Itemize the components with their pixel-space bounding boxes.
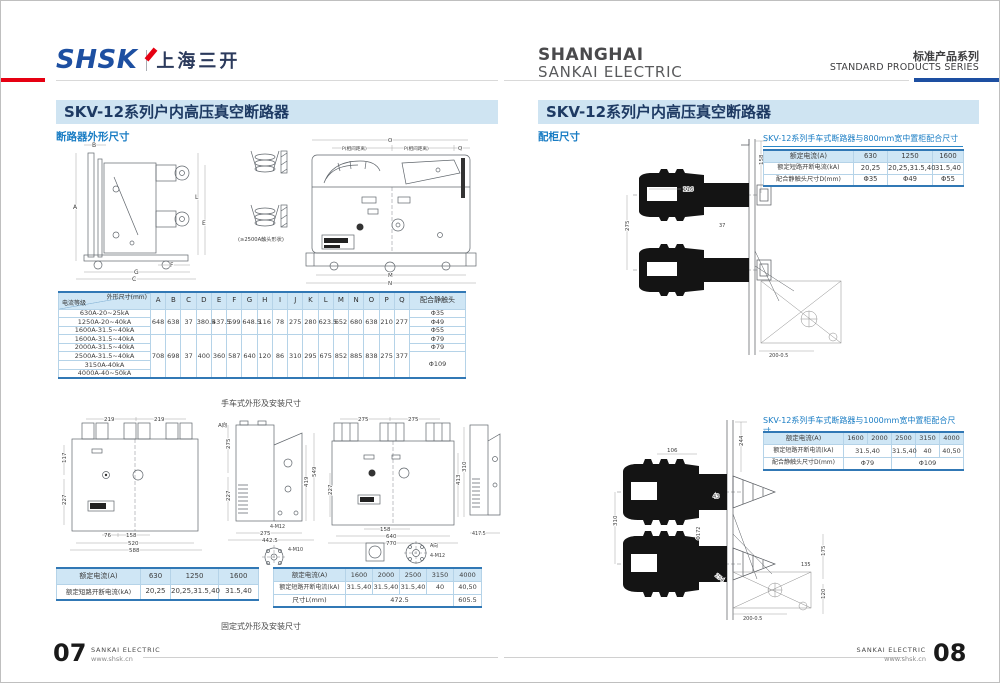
val: 31.5,40 [373, 581, 400, 594]
val: 275 [288, 309, 303, 335]
col-header: M [333, 292, 348, 309]
val: 116 [257, 309, 272, 335]
dim-label: M [388, 273, 393, 279]
val: 605.5 [454, 594, 482, 607]
contact-shape-note: (≥2500A触头形状) [238, 235, 284, 243]
col-header: O [364, 292, 379, 309]
left-page-number: 07 [53, 639, 86, 667]
fixed-detail-views: A向 4-M12 [366, 541, 445, 565]
corner-bottom-label: 电流等级 [62, 301, 86, 307]
val: 708 [151, 335, 166, 378]
val: 37 [181, 335, 196, 378]
val: 1600 [346, 568, 373, 581]
val: 360 [211, 335, 226, 378]
val: 2500 [400, 568, 427, 581]
val: 623.5 [318, 309, 333, 335]
dim-label: 219 [154, 417, 165, 423]
row-label: 4000A-40~50kA [59, 369, 151, 378]
fixed-front-view-2: 275 275 227 413 158 640 770 [328, 417, 462, 547]
row-label: 配合静触头尺寸D(mm) [764, 174, 854, 186]
dim-label: 227 [62, 494, 68, 505]
val: 20,25,31.5,40 [888, 162, 933, 174]
dim-label: 117 [62, 452, 68, 463]
fixed-rating-table: 额定电流(A) 1600 2000 2500 3150 4000 额定短路开断电… [273, 567, 482, 608]
val: 120 [257, 335, 272, 378]
fixed-front-view-1: 219 219 117 227 76 158 520 588 [62, 417, 202, 554]
dim-label: N [388, 281, 392, 287]
val: 472.5 [346, 594, 454, 607]
dim-label: 106 [667, 448, 678, 454]
col-header: A [151, 292, 166, 309]
truck-mechanism-2 [733, 572, 811, 610]
dim-label: 275 [625, 220, 631, 231]
row-label: 额定短路开断电流(kA) [764, 445, 844, 458]
cabinet-1000mm-table: 额定电流(A) 1600 2000 2500 3150 4000 额定短路开断电… [763, 431, 964, 471]
dim-label: 442.5 [262, 538, 278, 544]
fixed-breaker-drawing: 219 219 117 227 76 158 520 588 [56, 413, 501, 565]
val: Φ49 [888, 174, 933, 186]
header-navy-rule [914, 78, 1000, 82]
val: Φ79 [844, 457, 892, 470]
val: 380.5 [196, 309, 211, 335]
val: 310 [288, 335, 303, 378]
logo-brand-cn: 上海三开 [156, 51, 240, 72]
col-header: K [303, 292, 318, 309]
val: 280 [303, 309, 318, 335]
dim-label: E [202, 220, 206, 227]
contact-val: Φ49 [410, 318, 466, 327]
dim-label: 227 [328, 484, 334, 495]
val: 675 [318, 335, 333, 378]
dim-label: A [73, 204, 78, 211]
fixed-side-view-2: 310 417.5 [462, 425, 500, 537]
dim-label: 310 [613, 515, 619, 526]
val: 86 [272, 335, 287, 378]
val: 599 [227, 309, 242, 335]
footer-brand-right: SANKAI ELECTRIC [831, 646, 926, 654]
fixed-caption: 固定式外形及安装尺寸 [56, 621, 466, 632]
dim-label: A向 [218, 421, 227, 429]
row-label: 2500A-31.5~40kA [59, 352, 151, 361]
handcart-side-view [84, 153, 189, 269]
row-label: 额定短路开断电流(kA) [764, 162, 854, 174]
dim-label: 175 [821, 545, 827, 556]
col-header: E [211, 292, 226, 309]
row-label: 2000A-31.5~40kA [59, 343, 151, 352]
val: 640 [242, 335, 257, 378]
dim-label: 588 [129, 548, 140, 554]
val: 1600 [219, 568, 259, 584]
contact-val: Φ79 [410, 343, 466, 352]
right-section-label: 配柜尺寸 [538, 129, 580, 144]
col-header: F [227, 292, 242, 309]
row-label: 配合静触头尺寸D(mm) [764, 457, 844, 470]
dim-label: 116 [683, 187, 694, 193]
footer-url-right: www.shsk.cn [831, 655, 926, 663]
val: 2000 [373, 568, 400, 581]
dim-label: 158 [380, 527, 391, 533]
handcart-rating-table: 额定电流(A) 630 1250 1600 额定短路开断电流(kA) 20,25… [56, 567, 259, 601]
diagonal-header-cell: 外形尺寸(mm) 电流等级 [59, 292, 151, 309]
dim-label: Q [458, 146, 463, 152]
dim-label: P(相间距离) [404, 145, 429, 152]
outline-dimensions-table: 外形尺寸(mm) 电流等级 A B C D E F G H I J K L M … [58, 291, 466, 379]
dim-label: F [170, 262, 174, 269]
dim-label: 37 [719, 223, 725, 229]
col-header: G [242, 292, 257, 309]
val: 838 [364, 335, 379, 378]
right-page-title: SKV-12系列户内高压真空断路器 [538, 100, 979, 124]
left-page-title: SKV-12系列户内高压真空断路器 [56, 100, 498, 124]
fixed-side-view-1: A向 275 227 419 549 4-M12 275 442.5 4-M10 [218, 421, 318, 565]
row-label: 额定电流(A) [274, 568, 346, 581]
dim-label: 275 [358, 417, 369, 423]
handcart-dim-lines [76, 145, 205, 279]
dim-label: 275 [226, 438, 232, 449]
row-label: 1250A-20~40kA [59, 318, 151, 327]
val: 31.5,40 [844, 445, 892, 458]
val: 377 [394, 335, 409, 378]
header-rule-right [504, 80, 909, 81]
dim-label: 520 [128, 541, 139, 547]
row-label: 额定短路开断电流(kA) [57, 584, 141, 600]
company-name-line1: SHANGHAI [538, 45, 644, 65]
dim-label: 4-M12 [270, 524, 285, 530]
row-label: 630A-20~25kA [59, 309, 151, 318]
dim-label: 200-0.5 [743, 616, 762, 622]
dim-label: P(相间距离) [342, 145, 367, 152]
catalog-spread: SHSK上海三开 SHANGHAI SANKAI ELECTRIC 标准产品系列… [0, 0, 1000, 683]
dim-label: 43 [713, 494, 719, 500]
val: 40 [916, 445, 940, 458]
contact-val: Φ109 [410, 352, 466, 378]
header-red-rule [1, 78, 45, 82]
val: 37 [181, 309, 196, 335]
row-label: 额定电流(A) [764, 150, 854, 162]
series-label-en: STANDARD PRODUCTS SERIES [779, 62, 979, 73]
val: 652 [333, 309, 348, 335]
footer-brand-left: SANKAI ELECTRIC [91, 646, 160, 654]
val: 20,25,31.5,40 [171, 584, 219, 600]
dim-label: 244 [739, 435, 745, 446]
val: 648.5 [242, 309, 257, 335]
val: 2000 [868, 432, 892, 445]
col-header: Q [394, 292, 409, 309]
val: 400 [196, 335, 211, 378]
contact-val: Φ35 [410, 309, 466, 318]
handcart-breaker-drawing: A B L E F G C (≥2500A触头形状) [58, 137, 478, 287]
val: 31.5,40 [346, 581, 373, 594]
val: 852 [333, 335, 348, 378]
val: 31.5,40 [892, 445, 916, 458]
val: 295 [303, 335, 318, 378]
row-label: 1600A-31.5~40kA [59, 326, 151, 335]
val: 638 [166, 309, 181, 335]
logo-brand-text: SHSK [56, 45, 137, 75]
val: 4000 [940, 432, 964, 445]
val: 638 [364, 309, 379, 335]
dim-label: 549 [312, 466, 318, 477]
val: 31.5,40 [400, 581, 427, 594]
dim-label: 4-M12 [430, 553, 445, 559]
dim-label: C [132, 276, 136, 283]
static-contact-spouts [639, 169, 749, 296]
val: 587 [227, 335, 242, 378]
static-contact-spouts-large [623, 459, 727, 597]
dim-label: 158 [126, 533, 137, 539]
val: 275 [379, 335, 394, 378]
val: 78 [272, 309, 287, 335]
contact-detail-upper [251, 151, 287, 173]
val: 210 [379, 309, 394, 335]
footer-url-left: www.shsk.cn [91, 655, 133, 663]
val: 277 [394, 309, 409, 335]
header-rule-left [56, 80, 498, 81]
dim-label: 310 [462, 461, 468, 472]
contact-detail-lower [251, 205, 287, 227]
val: 31.5,40 [933, 162, 964, 174]
val: Φ109 [892, 457, 964, 470]
dim-label: 640 [386, 534, 397, 540]
handcart-caption: 手车式外形及安装尺寸 [56, 398, 466, 409]
dim-label: A向 [430, 542, 438, 549]
val: 1600 [844, 432, 868, 445]
dim-label: 413 [456, 474, 462, 485]
val: 630 [141, 568, 171, 584]
val: 4000 [454, 568, 482, 581]
dim-label: 275 [408, 417, 419, 423]
col-header: J [288, 292, 303, 309]
dim-label: 4-M10 [288, 547, 303, 553]
row-label: 额定短路开断电流(kA) [274, 581, 346, 594]
col-header: I [272, 292, 287, 309]
company-name-line2: SANKAI ELECTRIC [538, 63, 683, 81]
val: 20,25 [854, 162, 888, 174]
right-page-number: 08 [933, 639, 966, 667]
val: 31.5,40 [219, 584, 259, 600]
val: 437.5 [211, 309, 226, 335]
val: 3150 [427, 568, 454, 581]
col-header: P [379, 292, 394, 309]
val: 40,50 [940, 445, 964, 458]
val: 1250 [888, 150, 933, 162]
dim-label: 227 [226, 490, 232, 501]
dim-label: O [388, 138, 393, 144]
val: 40,50 [454, 581, 482, 594]
dim-label: Φ172 [696, 527, 702, 540]
val: 680 [349, 309, 364, 335]
cabinet-table1-title: SKV-12系列手车式断路器与800mm宽中置柜配合尺寸 [763, 133, 963, 147]
dim-label: G [134, 269, 139, 276]
dim-label: 200-0.5 [769, 353, 788, 359]
corner-top-label: 外形尺寸(mm) [107, 295, 147, 301]
val: 2500 [892, 432, 916, 445]
footer-line-left [143, 657, 498, 658]
col-header: D [196, 292, 211, 309]
val: Φ35 [854, 174, 888, 186]
val: 648 [151, 309, 166, 335]
row-label: 额定电流(A) [57, 568, 141, 584]
col-header: L [318, 292, 333, 309]
col-header: C [181, 292, 196, 309]
val: 1250 [171, 568, 219, 584]
truck-mechanism [761, 281, 841, 343]
col-header: H [257, 292, 272, 309]
dim-label: B [92, 142, 96, 149]
val: 630 [854, 150, 888, 162]
val: 698 [166, 335, 181, 378]
dim-label: 770 [386, 541, 397, 547]
row-label: 3150A-40kA [59, 361, 151, 370]
dim-label: 419 [304, 476, 310, 487]
cabinet-800mm-table: 额定电流(A) 630 1250 1600 额定短路开断电流(kA) 20,25… [763, 149, 964, 187]
dim-label: 76 [104, 533, 111, 539]
dim-label: 275 [260, 531, 271, 537]
col-header: N [349, 292, 364, 309]
val: 3150 [916, 432, 940, 445]
val: 1600 [933, 150, 964, 162]
logo: SHSK上海三开 [56, 45, 240, 77]
val: 20,25 [141, 584, 171, 600]
row-label: 额定电流(A) [764, 432, 844, 445]
contact-val: Φ79 [410, 335, 466, 344]
contact-header: 配合静触头 [410, 292, 466, 309]
val: 40 [427, 581, 454, 594]
dim-label: 120 [821, 588, 827, 599]
row-label: 1600A-31.5~40kA [59, 335, 151, 344]
dim-label: 135 [801, 562, 811, 568]
contact-val: Φ55 [410, 326, 466, 335]
dim-label: 417.5 [472, 531, 486, 537]
val: Φ55 [933, 174, 964, 186]
dim-label: 219 [104, 417, 115, 423]
col-header: B [166, 292, 181, 309]
handcart-front-view: O P(相间距离) P(相间距离) Q M N [306, 138, 476, 287]
val: 885 [349, 335, 364, 378]
row-label: 尺寸L(mm) [274, 594, 346, 607]
dim-label: L [195, 194, 199, 201]
